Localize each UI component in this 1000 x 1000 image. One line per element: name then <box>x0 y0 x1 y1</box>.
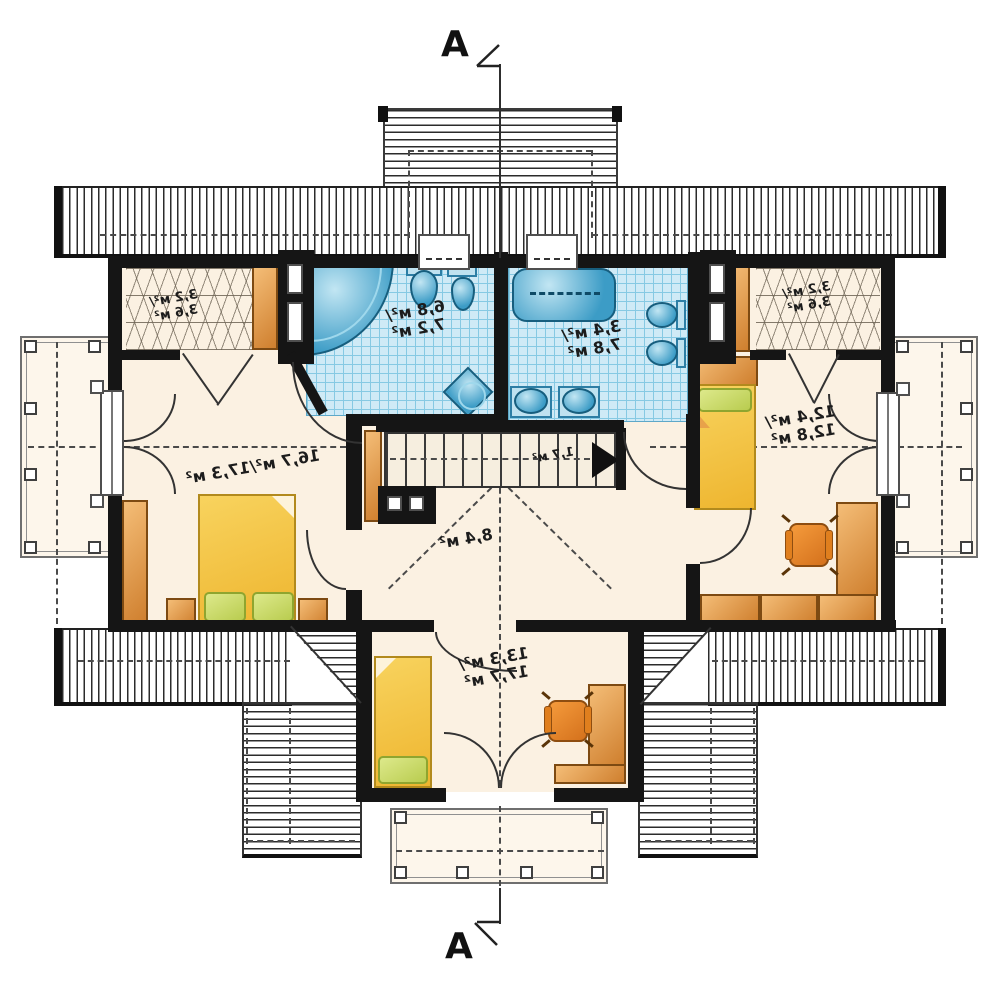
eaves-dashed-line <box>592 234 892 236</box>
roof-window-sash <box>426 258 462 260</box>
wall <box>122 350 180 360</box>
railing-post <box>456 866 469 879</box>
section-marker-leader-top <box>425 20 515 110</box>
eaves-dashed-line <box>712 660 924 662</box>
railing-post <box>591 866 604 879</box>
roof-cap <box>938 186 946 258</box>
chimney-flue <box>387 496 402 511</box>
stairs-direction-arrow <box>592 442 619 478</box>
railing-post <box>520 866 533 879</box>
height-dashed-line <box>28 446 106 448</box>
wall <box>554 788 638 802</box>
duct-shaft <box>287 264 303 294</box>
dormer-cap-right <box>612 106 622 122</box>
railing-post <box>896 340 909 353</box>
window-frame-line <box>887 394 889 494</box>
balcony-dashed-line <box>941 342 943 624</box>
wall <box>836 350 882 360</box>
roof-window <box>418 234 470 270</box>
wall <box>881 494 895 632</box>
desk <box>836 502 878 596</box>
office-chair <box>789 523 829 567</box>
duct-shaft <box>709 264 725 294</box>
railing-post <box>960 340 973 353</box>
pillow <box>378 756 428 784</box>
railing-post <box>960 468 973 481</box>
railing-post <box>394 866 407 879</box>
washbasin <box>514 388 548 414</box>
balcony-dashed-line <box>56 342 58 624</box>
window-frame-line <box>111 392 113 494</box>
railing-post <box>88 340 101 353</box>
roof-window <box>526 234 578 270</box>
bathtub <box>512 268 616 322</box>
wardrobe <box>122 500 148 624</box>
roof-dashed-line <box>247 840 355 842</box>
chair-armrest <box>544 706 552 734</box>
wall <box>634 620 896 632</box>
roof-cap <box>938 628 946 706</box>
roof-dashed-line <box>289 708 291 844</box>
chimney-flue <box>409 496 424 511</box>
wall <box>688 252 700 422</box>
blanket-fold <box>272 496 294 518</box>
roof-dashed-line <box>753 708 755 844</box>
dormer-cap-left <box>378 106 388 122</box>
desk <box>588 684 626 766</box>
railing-post <box>24 468 37 481</box>
section-dashed-line <box>499 806 501 886</box>
window <box>876 392 900 496</box>
window-handle <box>90 494 104 508</box>
wall <box>362 788 446 802</box>
wall <box>628 620 644 802</box>
wall <box>368 620 434 632</box>
wall <box>346 590 362 632</box>
wall <box>750 350 786 360</box>
eaves-dashed-line <box>78 660 290 662</box>
section-dashed-line <box>499 478 501 630</box>
roof-cap <box>54 628 62 706</box>
wall <box>494 252 508 428</box>
dormer-dashed-line <box>591 150 593 238</box>
chair-armrest <box>584 706 592 734</box>
wall <box>881 256 895 392</box>
eaves-dashed-line <box>100 234 410 236</box>
railing-post <box>24 541 37 554</box>
roof-dashed-line <box>246 708 248 844</box>
wall <box>516 620 636 632</box>
roof-band-bottom-right <box>708 628 938 706</box>
railing-post <box>896 541 909 554</box>
roof-band-bottom-left <box>62 628 292 706</box>
bathtub-handles <box>530 292 600 295</box>
roof-lower-right <box>638 702 758 858</box>
pillow <box>204 592 246 622</box>
blanket-fold <box>376 658 396 678</box>
duct-shaft <box>709 302 725 342</box>
railing-post <box>24 340 37 353</box>
shelving <box>554 764 626 784</box>
washbasin <box>562 388 596 414</box>
stairs <box>384 432 622 488</box>
railing-post <box>88 541 101 554</box>
wardrobe <box>252 266 278 350</box>
window <box>100 390 124 496</box>
height-dashed-line <box>898 446 962 448</box>
wall <box>108 620 368 632</box>
roof-dashed-line <box>645 840 753 842</box>
wall <box>356 620 372 802</box>
section-marker-a-top: A <box>441 24 469 65</box>
chair-armrest <box>785 530 793 560</box>
window-handle <box>896 382 910 396</box>
chair-armrest <box>825 530 833 560</box>
roof-cap <box>54 186 62 258</box>
floor-plan: A A 3,2 м²/ 3,6 м² 6,8 м²/ 7,2 м² 3,4 м²… <box>0 0 1000 1000</box>
section-marker-a-bottom: A <box>445 926 473 967</box>
window-handle <box>896 494 910 508</box>
pillow <box>698 388 752 412</box>
railing-post <box>24 402 37 415</box>
roof-lower-left <box>242 702 362 858</box>
railing-post <box>394 811 407 824</box>
railing-post <box>960 402 973 415</box>
pillow <box>252 592 294 622</box>
wall <box>108 494 122 632</box>
window-handle <box>90 380 104 394</box>
railing-post <box>960 541 973 554</box>
roof-window-sash <box>534 258 570 260</box>
wall <box>686 564 700 632</box>
railing-post <box>591 811 604 824</box>
roof-dashed-line <box>710 708 712 844</box>
wall <box>686 414 700 508</box>
dormer-dashed-line <box>408 150 410 238</box>
wall <box>376 420 624 432</box>
duct-shaft <box>287 302 303 342</box>
